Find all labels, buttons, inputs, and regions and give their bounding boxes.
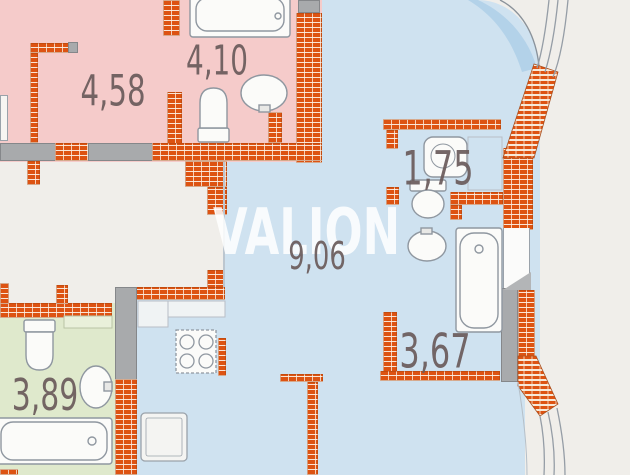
- wall: [518, 356, 558, 416]
- fridge: [141, 413, 187, 461]
- bathtub: [0, 418, 112, 464]
- bathtub: [456, 228, 502, 332]
- washbasin: [408, 228, 446, 261]
- floor-plan: VALION 4,58 4,10 1,75 9,06 3,67 3,89: [0, 0, 630, 475]
- bathtub: [190, 0, 290, 37]
- toilet: [24, 320, 55, 370]
- room-label-3-67: 3,67: [399, 329, 470, 376]
- room-label-1-75: 1,75: [402, 146, 473, 193]
- stove: [176, 330, 216, 373]
- bay-window-arcs-bottom: [540, 408, 565, 475]
- bay-window-arcs-top: [537, 0, 568, 77]
- bay-glazing: [468, 0, 537, 72]
- washbasin: [80, 366, 112, 408]
- shelf: [64, 316, 112, 328]
- room-label-4-10: 4,10: [186, 41, 248, 82]
- wall: [503, 272, 531, 290]
- room-label-3-89: 3,89: [12, 374, 79, 418]
- wall: [503, 64, 558, 158]
- room-label-4-58: 4,58: [80, 71, 145, 114]
- kitchen-counter: [138, 301, 225, 327]
- room-label-9-06: 9,06: [288, 237, 346, 275]
- toilet: [198, 88, 229, 142]
